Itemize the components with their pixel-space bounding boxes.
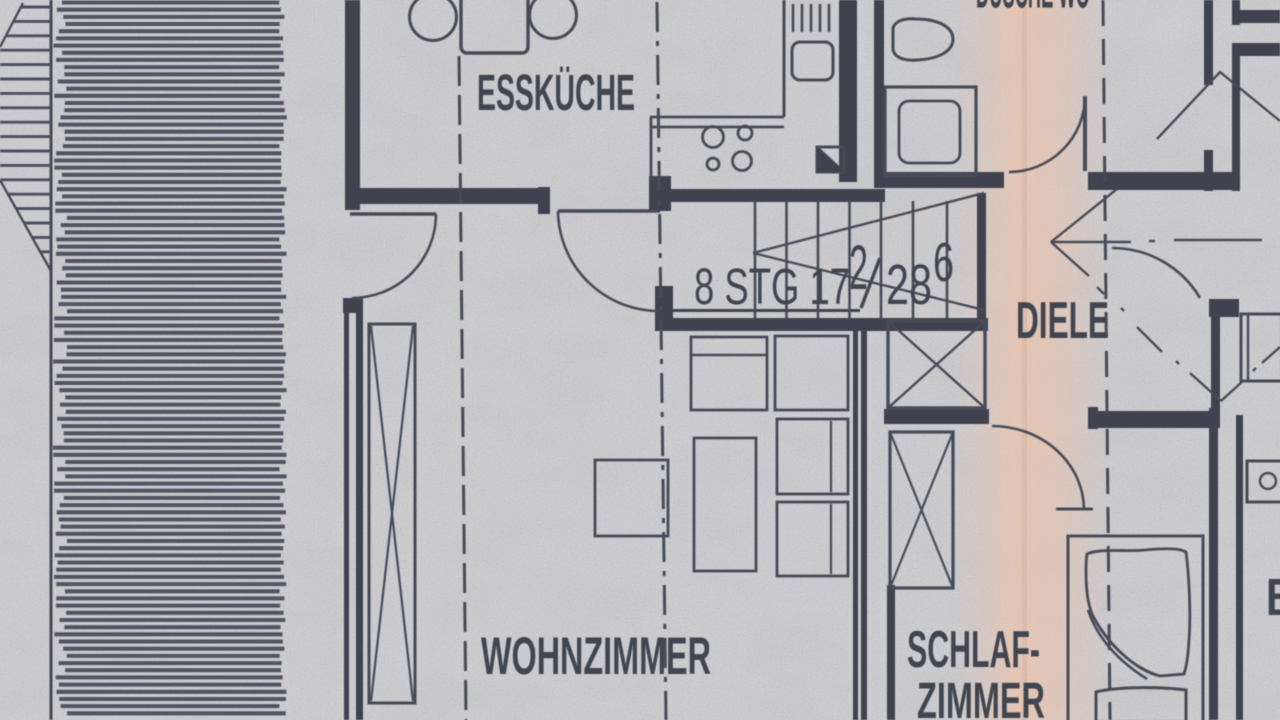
- svg-text:SCHLAF-: SCHLAF-: [907, 621, 1040, 679]
- svg-text:B: B: [1266, 569, 1280, 627]
- svg-text:DIELE: DIELE: [1016, 292, 1109, 350]
- svg-text:28: 28: [886, 253, 932, 317]
- svg-text:DUSCHE WC: DUSCHE WC: [976, 0, 1089, 19]
- svg-text:8 STG 17: 8 STG 17: [694, 258, 850, 315]
- svg-text:WOHNZIMMER: WOHNZIMMER: [481, 627, 711, 686]
- svg-text:6: 6: [933, 231, 954, 293]
- svg-text:ZIMMER: ZIMMER: [917, 672, 1045, 720]
- svg-text:ESSKÜCHE: ESSKÜCHE: [477, 64, 635, 121]
